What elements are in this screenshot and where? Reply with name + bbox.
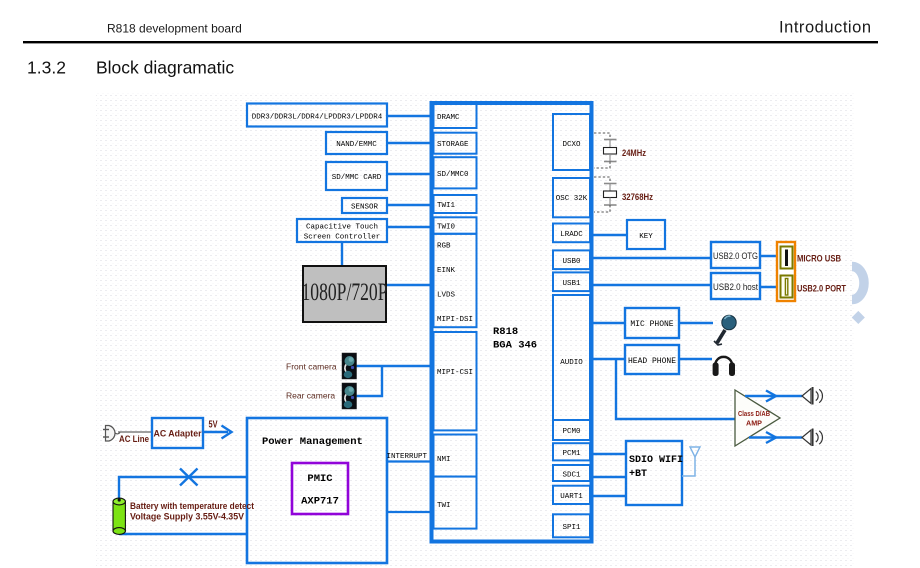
svg-text:EINK: EINK <box>437 267 456 275</box>
svg-text:Battery with temperature detec: Battery with temperature detect <box>130 501 254 511</box>
svg-text:AXP717: AXP717 <box>301 496 339 508</box>
svg-text:5V: 5V <box>209 420 218 431</box>
svg-text:PCM1: PCM1 <box>562 450 581 458</box>
svg-text:R818 development board: R818 development board <box>107 22 242 36</box>
svg-text:SDC1: SDC1 <box>562 472 581 480</box>
svg-text:MIPI-DSI: MIPI-DSI <box>437 316 473 324</box>
svg-text:AC Line: AC Line <box>119 434 149 445</box>
svg-text:SD/MMC CARD: SD/MMC CARD <box>332 174 382 182</box>
svg-text:USB0: USB0 <box>562 258 581 266</box>
svg-text:AC Adapter: AC Adapter <box>154 429 202 440</box>
svg-text:MIPI-CSI: MIPI-CSI <box>437 369 473 377</box>
svg-text:USB2.0 PORT: USB2.0 PORT <box>797 284 846 294</box>
svg-text:NMI: NMI <box>437 456 451 464</box>
svg-text:SENSOR: SENSOR <box>351 204 379 212</box>
svg-text:HEAD PHONE: HEAD PHONE <box>628 357 676 366</box>
svg-text:Front camera: Front camera <box>286 362 337 372</box>
svg-text:SDIO WIFI: SDIO WIFI <box>629 455 683 466</box>
svg-text:UART1: UART1 <box>560 493 583 501</box>
svg-text:KEY: KEY <box>639 233 653 241</box>
svg-text:R818: R818 <box>493 326 518 338</box>
svg-text:MICRO USB: MICRO USB <box>797 254 841 264</box>
svg-text:32768Hz: 32768Hz <box>622 192 653 202</box>
svg-text:TWI0: TWI0 <box>437 224 456 232</box>
svg-text:DRAMC: DRAMC <box>437 114 460 122</box>
svg-text:PCM0: PCM0 <box>562 428 581 436</box>
svg-text:OSC 32K: OSC 32K <box>556 195 588 203</box>
svg-text:Introduction: Introduction <box>779 19 871 37</box>
svg-text:1.3.2: 1.3.2 <box>27 58 66 78</box>
svg-text:AMP: AMP <box>746 419 762 428</box>
svg-text:Screen Controller: Screen Controller <box>304 234 381 242</box>
svg-text:LVDS: LVDS <box>437 292 456 300</box>
svg-text:DDR3/DDR3L/DDR4/LPDDR3/LPDDR4: DDR3/DDR3L/DDR4/LPDDR3/LPDDR4 <box>252 114 383 122</box>
svg-text:BGA 346: BGA 346 <box>493 340 537 352</box>
svg-text:1080P/720P: 1080P/720P <box>302 279 388 306</box>
svg-text:Power Management: Power Management <box>262 436 363 448</box>
svg-text:24MHz: 24MHz <box>622 148 646 158</box>
svg-text:Block diagramatic: Block diagramatic <box>96 58 234 78</box>
svg-text:USB2.0 OTG: USB2.0 OTG <box>713 251 758 262</box>
svg-text:Voltage Supply 3.55V-4.35V: Voltage Supply 3.55V-4.35V <box>130 512 244 522</box>
svg-text:Capacitive Touch: Capacitive Touch <box>306 224 378 232</box>
svg-text:+BT: +BT <box>629 469 647 480</box>
svg-text:DCXO: DCXO <box>562 141 581 149</box>
svg-text:STORAGE: STORAGE <box>437 141 469 149</box>
svg-text:TWI1: TWI1 <box>437 202 456 210</box>
svg-text:SPI1: SPI1 <box>562 524 581 532</box>
svg-text:PMIC: PMIC <box>307 473 333 485</box>
svg-text:Rear camera: Rear camera <box>286 391 335 401</box>
svg-text:SD/MMC0: SD/MMC0 <box>437 171 469 179</box>
svg-text:USB1: USB1 <box>562 280 581 288</box>
svg-text:USB2.0 host: USB2.0 host <box>713 282 758 293</box>
svg-text:RGB: RGB <box>437 243 451 251</box>
svg-text:INTERRUPT: INTERRUPT <box>387 453 428 461</box>
svg-text:MIC PHONE: MIC PHONE <box>630 320 673 329</box>
svg-text:AUDIO: AUDIO <box>560 359 583 367</box>
svg-text:TWI: TWI <box>437 502 451 510</box>
svg-text:NAND/EMMC: NAND/EMMC <box>336 141 377 149</box>
svg-text:LRADC: LRADC <box>560 231 583 239</box>
svg-text:Class D/AB: Class D/AB <box>738 409 770 418</box>
